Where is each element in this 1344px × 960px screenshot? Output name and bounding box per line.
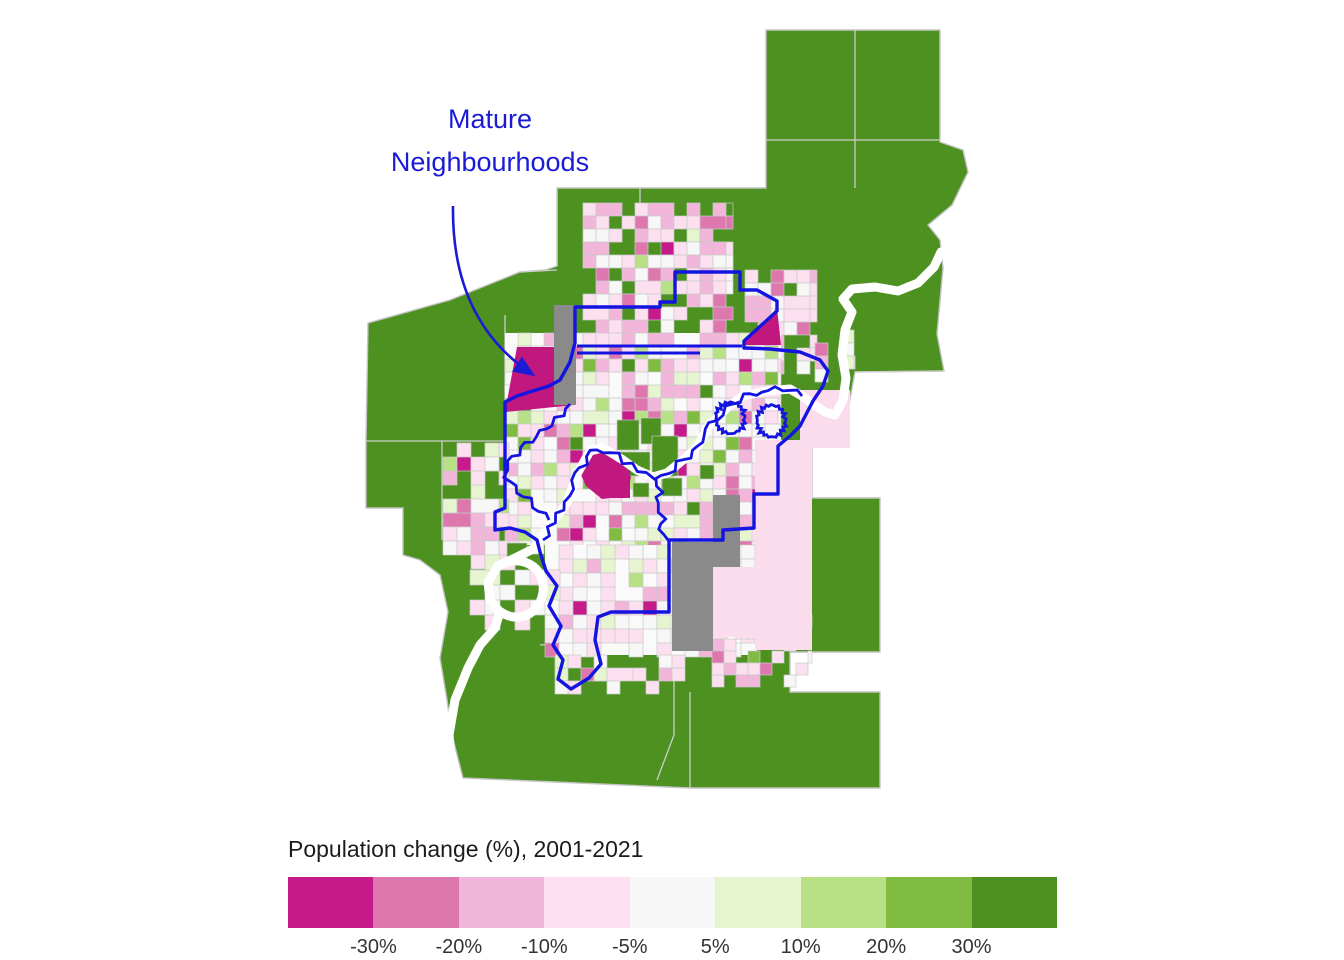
legend-labels: -30%-20%-10%-5%5%10%20%30% [288, 936, 1057, 960]
legend-colorbar [288, 877, 1057, 928]
legend-tick-label: 5% [701, 936, 730, 959]
annotation-line-1: Mature [340, 98, 640, 141]
map-annotation: Mature Neighbourhoods [340, 98, 640, 184]
legend-tick-label: -5% [612, 936, 648, 959]
legend-color-segment [544, 877, 629, 928]
legend: Population change (%), 2001-2021 -30%-20… [288, 836, 1057, 960]
legend-color-segment [972, 877, 1057, 928]
legend-color-segment [459, 877, 544, 928]
legend-tick-label: 10% [781, 936, 821, 959]
legend-color-segment [373, 877, 458, 928]
legend-title: Population change (%), 2001-2021 [288, 836, 1057, 863]
legend-tick-label: -30% [350, 936, 397, 959]
legend-color-segment [801, 877, 886, 928]
annotation-line-2: Neighbourhoods [340, 141, 640, 184]
legend-color-segment [630, 877, 715, 928]
legend-tick-label: 30% [952, 936, 992, 959]
legend-color-segment [288, 877, 373, 928]
legend-tick-label: -10% [521, 936, 568, 959]
figure: Mature Neighbourhoods Population change … [0, 0, 1344, 960]
legend-tick-label: 20% [866, 936, 906, 959]
choropleth-map [0, 0, 1344, 820]
legend-tick-label: -20% [436, 936, 483, 959]
legend-color-segment [715, 877, 800, 928]
legend-color-segment [886, 877, 971, 928]
